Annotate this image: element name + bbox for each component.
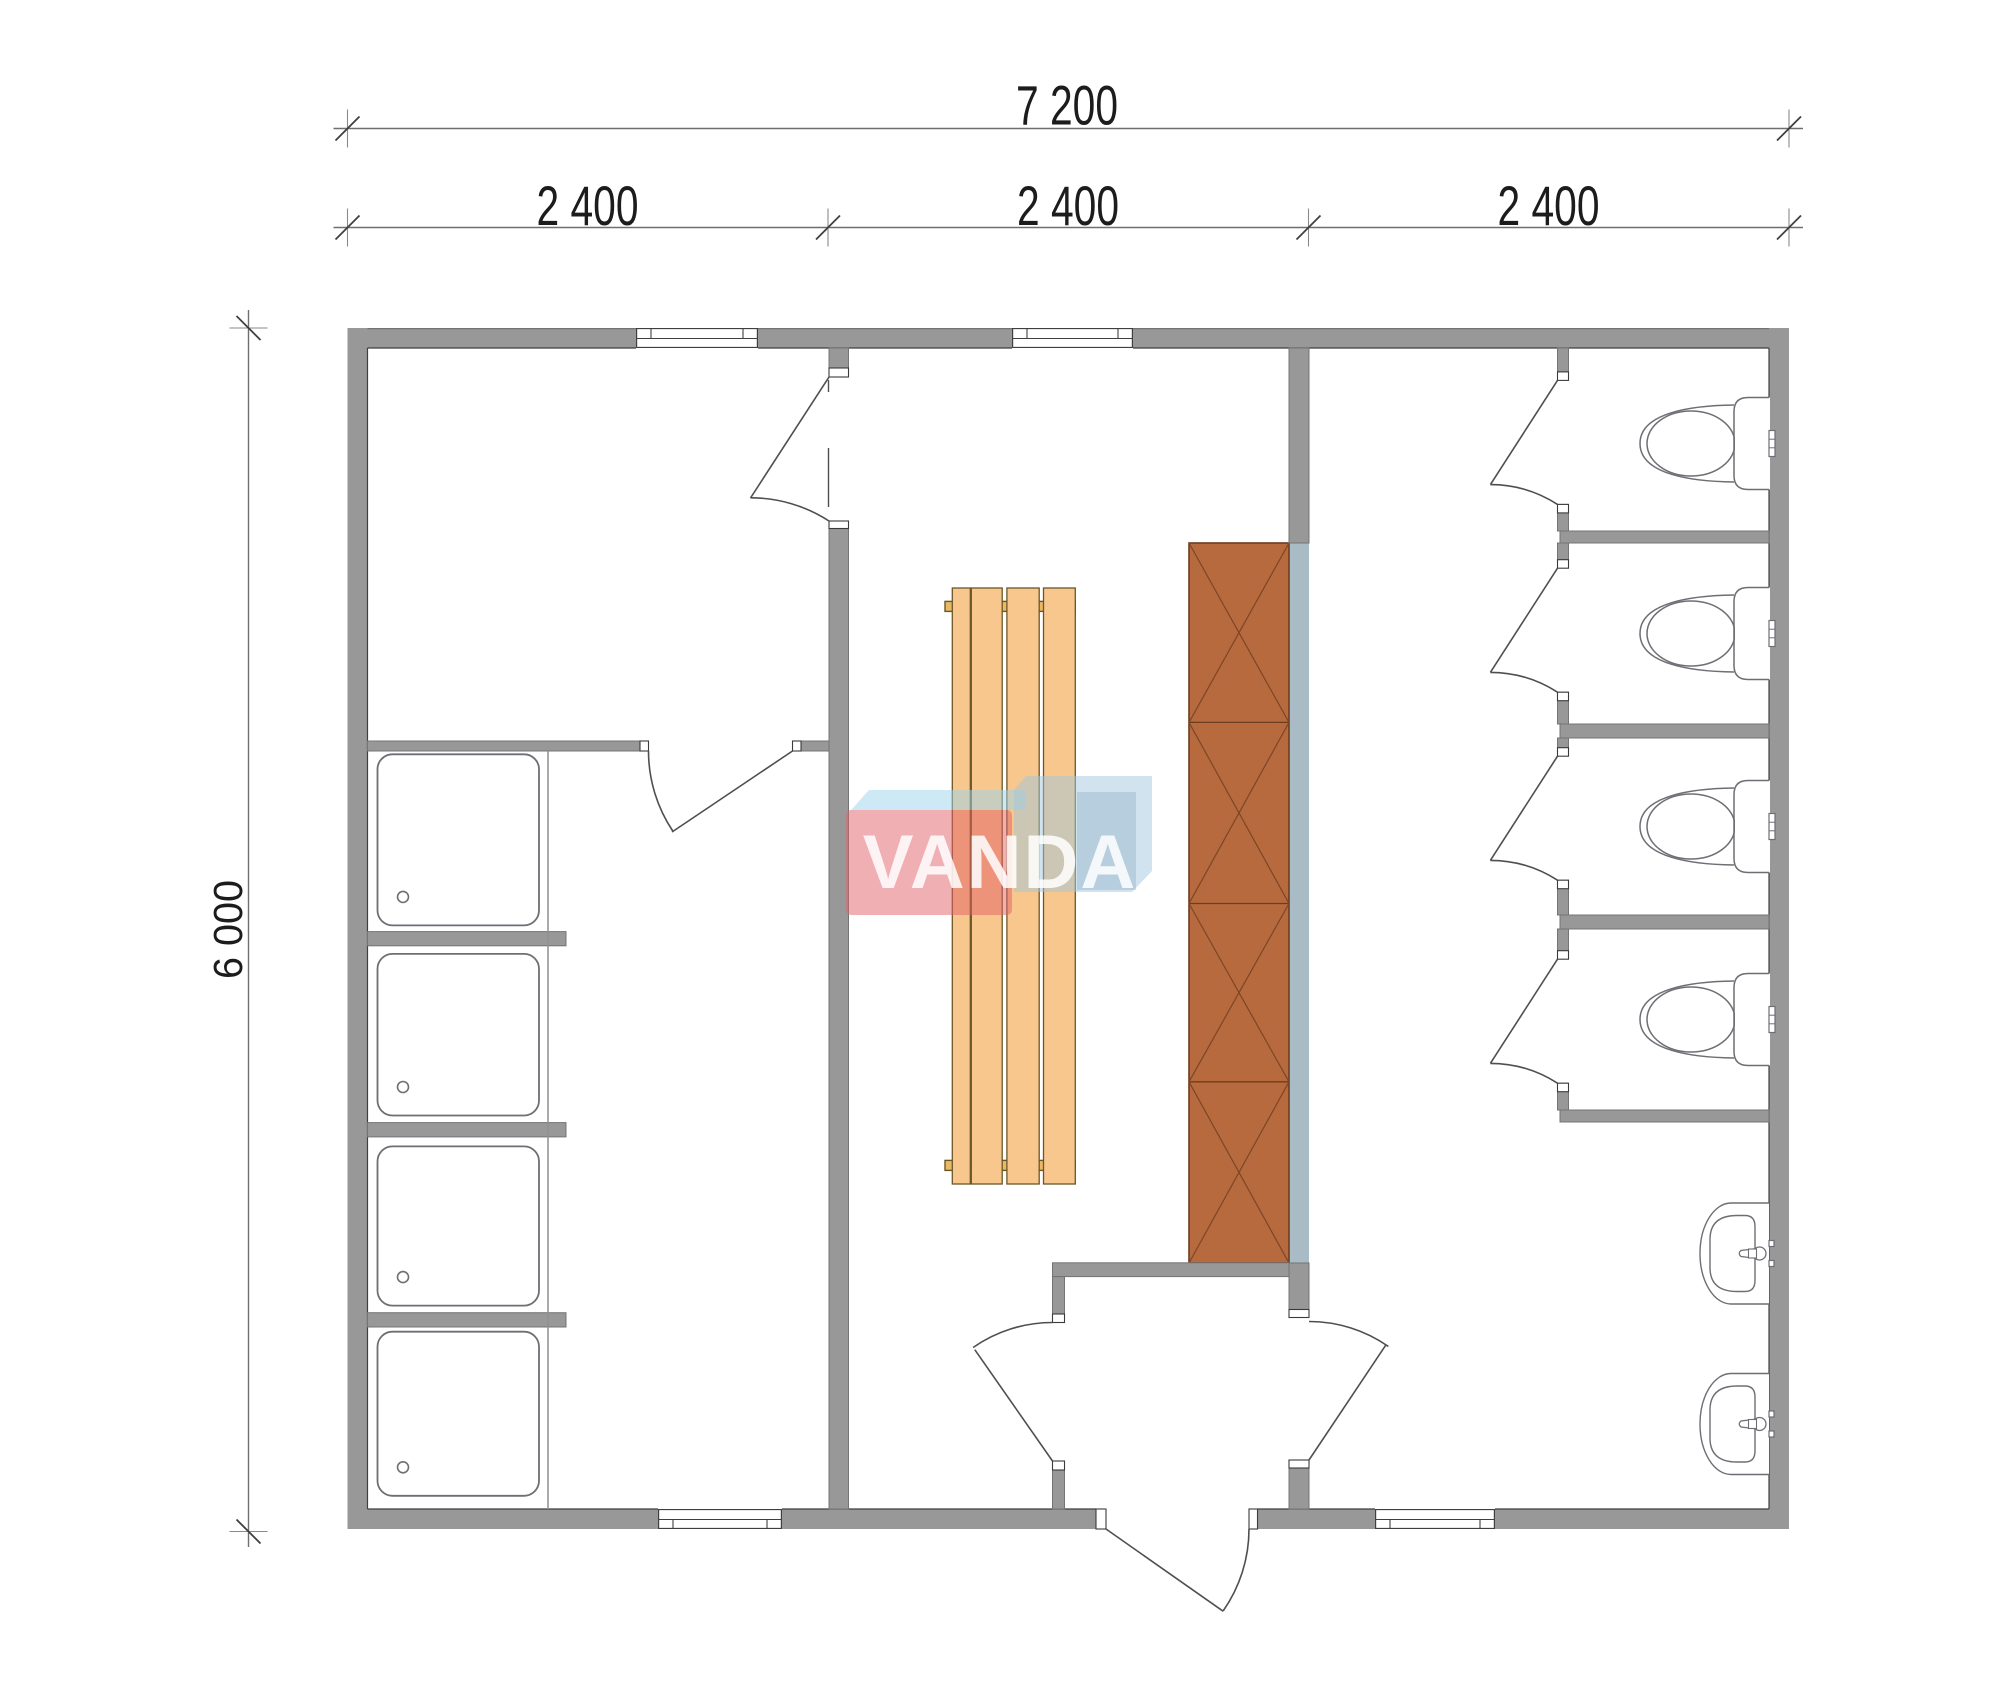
svg-text:6 000: 6 000 [205, 880, 251, 979]
svg-text:VANDA: VANDA [863, 820, 1138, 905]
svg-text:2 400: 2 400 [537, 174, 639, 237]
svg-text:2 400: 2 400 [1017, 174, 1119, 237]
svg-text:7 200: 7 200 [1016, 74, 1118, 137]
svg-text:2 400: 2 400 [1498, 174, 1600, 237]
